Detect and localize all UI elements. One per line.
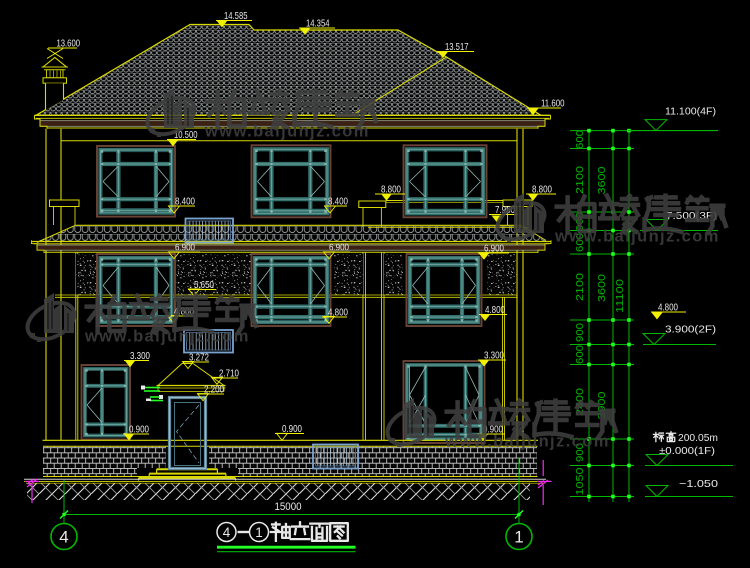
svg-text:600: 600 [574, 130, 586, 149]
svg-text:2100: 2100 [574, 166, 586, 194]
svg-text:11100: 11100 [614, 279, 626, 313]
svg-text:900: 900 [574, 323, 586, 342]
svg-text:15000: 15000 [275, 501, 302, 513]
svg-text:200.05m: 200.05m [678, 432, 718, 444]
svg-text:11.100(4F): 11.100(4F) [665, 106, 716, 118]
svg-text:www.baijunjz.com: www.baijunjz.com [204, 123, 370, 141]
svg-text:4: 4 [223, 525, 231, 540]
svg-text:3.900(2F): 3.900(2F) [665, 324, 716, 336]
svg-text:www.baijunjz.com: www.baijunjz.com [444, 433, 610, 451]
svg-text:−1.050: −1.050 [679, 478, 718, 490]
svg-text:2100: 2100 [574, 273, 586, 301]
svg-text:1: 1 [514, 528, 523, 547]
svg-text:1: 1 [255, 525, 263, 540]
svg-text:www.baijunjz.com: www.baijunjz.com [84, 328, 250, 346]
svg-text:600: 600 [574, 345, 586, 364]
svg-text:www.baijunjz.com: www.baijunjz.com [554, 228, 720, 246]
svg-text:3600: 3600 [596, 166, 608, 194]
svg-text:1050: 1050 [574, 467, 586, 495]
svg-text:3600: 3600 [596, 274, 608, 302]
svg-text:4: 4 [59, 528, 68, 547]
